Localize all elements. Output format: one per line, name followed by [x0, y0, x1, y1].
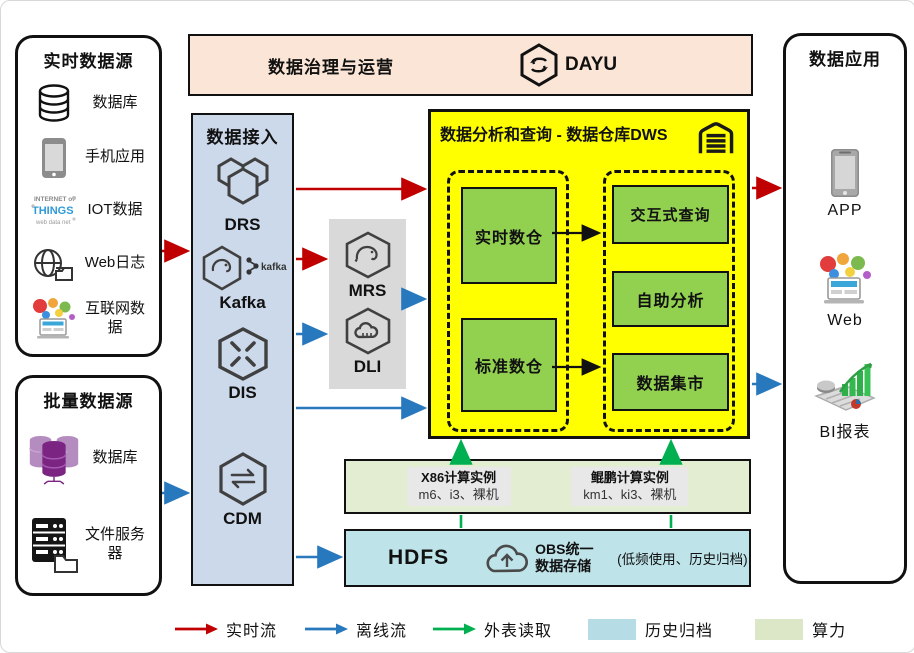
service-label: MRS: [349, 281, 387, 301]
mobile-app-icon: [28, 137, 80, 179]
app-label: Web: [827, 312, 863, 330]
cdm-icon: [217, 451, 269, 507]
service-self-analysis: 自助分析: [612, 271, 729, 327]
database-icon: [28, 83, 80, 125]
source-label: IOT数据: [80, 201, 150, 220]
batch-sources-title: 批量数据源: [18, 387, 159, 412]
legend-offline-flow: 离线流: [303, 617, 407, 641]
source-label: 数据库: [80, 449, 150, 468]
legend-history-archive: 历史归档: [588, 617, 713, 641]
batch-database-icon: [28, 428, 80, 488]
svg-text:web data net: web data net: [35, 220, 71, 226]
app-label: BI报表: [819, 418, 870, 442]
legend: 实时流 离线流 外表读取 历史归档 算力: [173, 615, 846, 643]
data-apps-box: 数据应用 APP: [783, 33, 907, 584]
dli-icon: [342, 307, 394, 355]
dayu-label: DAYU: [565, 54, 617, 76]
drs-icon: [212, 151, 274, 213]
data-access-title: 数据接入: [193, 123, 292, 148]
compute-power-swatch: [755, 619, 803, 640]
data-access-column: 数据接入 DRS kafka Kafk: [191, 113, 294, 586]
service-label: Kafka: [219, 293, 265, 313]
hdfs-label: HDFS: [388, 546, 449, 570]
storage-note: (低频使用、历史归档): [617, 548, 748, 568]
service-label: DIS: [228, 383, 256, 403]
iot-icon: INTERNET of THINGS web data net: [28, 191, 80, 231]
warehouse-icon: [694, 117, 738, 155]
green-arrow-icon: [431, 622, 477, 636]
weblog-icon: [28, 244, 80, 284]
svg-text:THINGS: THINGS: [32, 205, 74, 217]
app-label: APP: [827, 202, 862, 220]
service-label: DLI: [354, 357, 381, 377]
kunpeng-instance: 鲲鹏计算实例 km1、ki3、裸机: [571, 467, 688, 506]
service-interactive-query: 交互式查询: [612, 185, 729, 244]
file-server-icon: [28, 516, 80, 574]
obs-label: OBS统一数据存储: [535, 541, 607, 576]
service-data-mart: 数据集市: [612, 353, 729, 411]
source-label: 手机应用: [80, 148, 150, 167]
svg-text:kafka: kafka: [261, 262, 287, 273]
dis-icon: [214, 327, 272, 381]
obs-cloud-icon: [483, 540, 531, 576]
service-label: DRS: [225, 215, 261, 235]
history-archive-swatch: [588, 619, 636, 640]
warehouse-standard: 标准数仓: [461, 318, 557, 412]
compute-box: X86计算实例 m6、i3、裸机 鲲鹏计算实例 km1、ki3、裸机: [344, 459, 751, 514]
internet-data-icon: [28, 297, 80, 341]
x86-instance: X86计算实例 m6、i3、裸机: [407, 467, 511, 506]
bi-report-icon: [812, 358, 878, 414]
service-group: 交互式查询 自助分析 数据集市: [603, 170, 735, 432]
source-label: 互联网数据: [80, 300, 150, 338]
red-arrow-icon: [173, 622, 219, 636]
dayu-badge: DAYU: [519, 43, 617, 87]
governance-title: 数据治理与运营: [268, 53, 394, 78]
service-label: CDM: [223, 509, 262, 529]
dayu-icon: [519, 43, 559, 87]
source-label: 数据库: [80, 94, 150, 113]
processing-box: MRS DLI: [329, 219, 406, 389]
dws-title: 数据分析和查询 - 数据仓库DWS: [440, 121, 715, 145]
realtime-sources-box: 实时数据源 数据库 手机应用: [15, 35, 162, 357]
warehouse-realtime: 实时数仓: [461, 187, 557, 284]
legend-external-read: 外表读取: [431, 617, 552, 641]
governance-bar: 数据治理与运营 DAYU: [188, 34, 753, 96]
architecture-diagram: 实时数据源 数据库 手机应用: [0, 0, 914, 653]
data-apps-title: 数据应用: [786, 45, 904, 70]
svg-text:INTERNET of: INTERNET of: [34, 196, 75, 203]
warehouse-group: 实时数仓 标准数仓: [447, 170, 569, 432]
legend-compute-power: 算力: [755, 617, 846, 641]
web-icon: [814, 252, 876, 308]
blue-arrow-icon: [303, 622, 349, 636]
dws-box: 数据分析和查询 - 数据仓库DWS 实时数仓 标准数仓 交互式查询 自助分析 数…: [428, 109, 750, 439]
app-phone-icon: [830, 148, 860, 198]
source-label: Web日志: [80, 254, 150, 273]
mrs-icon: [342, 231, 394, 279]
legend-realtime-flow: 实时流: [173, 617, 277, 641]
storage-box: HDFS OBS统一数据存储 (低频使用、历史归档): [344, 529, 751, 587]
source-label: 文件服务器: [80, 526, 150, 564]
batch-sources-box: 批量数据源: [15, 375, 162, 596]
realtime-sources-title: 实时数据源: [18, 47, 159, 72]
kafka-icon: kafka: [199, 245, 287, 291]
